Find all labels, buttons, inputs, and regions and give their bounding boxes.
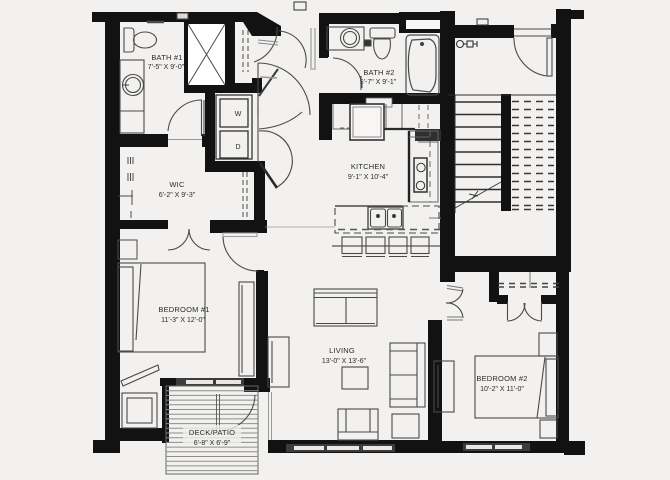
svg-text:7'-5" X 9'-0": 7'-5" X 9'-0"	[148, 64, 185, 71]
svg-text:D: D	[235, 144, 240, 151]
svg-text:KITCHEN: KITCHEN	[351, 162, 385, 171]
svg-text:5'-7" X 9'-1": 5'-7" X 9'-1"	[360, 79, 397, 86]
svg-text:10'-2" X 11'-0": 10'-2" X 11'-0"	[480, 386, 524, 393]
svg-text:BATH #2: BATH #2	[363, 68, 394, 77]
svg-text:6'-8" X 6'-9": 6'-8" X 6'-9"	[194, 440, 231, 447]
svg-text:DECK/PATIO: DECK/PATIO	[189, 428, 235, 437]
svg-text:LIVING: LIVING	[329, 346, 355, 355]
svg-text:11'-3" X 12'-0": 11'-3" X 12'-0"	[161, 317, 205, 324]
svg-text:BEDROOM #1: BEDROOM #1	[158, 305, 209, 314]
svg-text:BEDROOM #2: BEDROOM #2	[476, 374, 527, 383]
svg-text:BATH #1: BATH #1	[151, 53, 182, 62]
svg-text:6'-2" X 9'-3": 6'-2" X 9'-3"	[159, 192, 196, 199]
svg-text:W: W	[235, 111, 242, 118]
svg-text:13'-0" X 13'-6": 13'-0" X 13'-6"	[322, 358, 367, 365]
svg-text:WIC: WIC	[169, 180, 185, 189]
svg-text:9'-1" X 10'-4": 9'-1" X 10'-4"	[348, 174, 389, 181]
